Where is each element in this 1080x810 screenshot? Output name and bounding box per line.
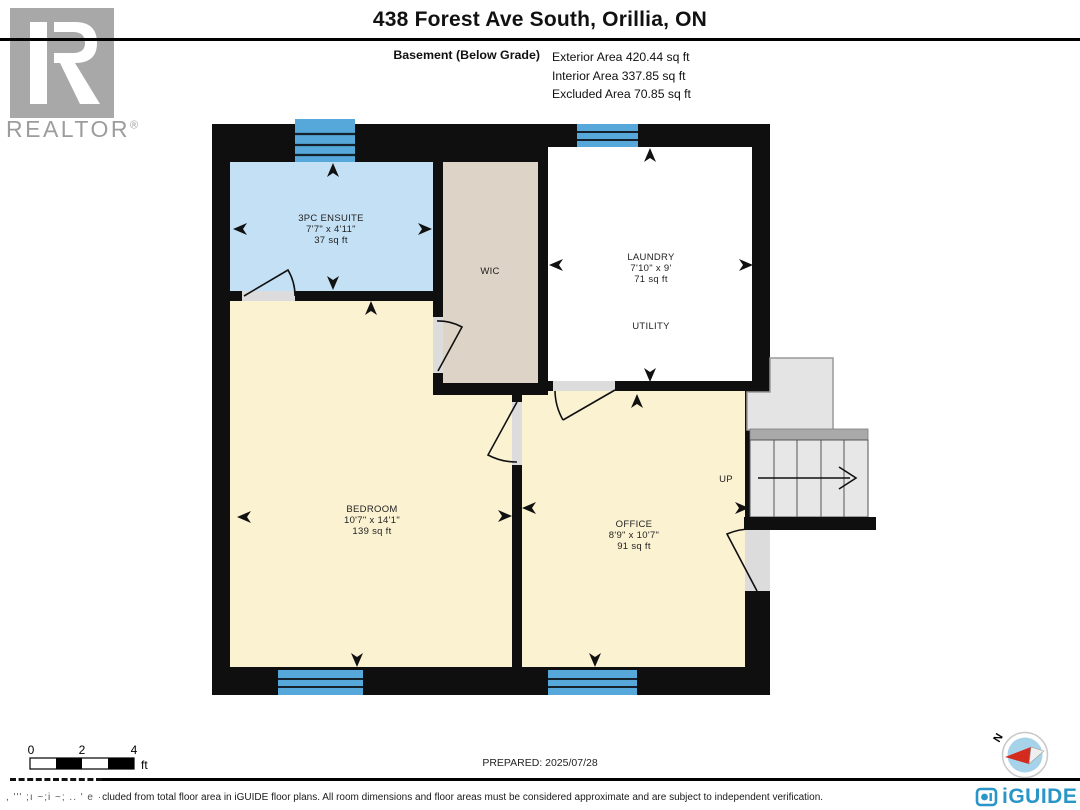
stair-bottom-wall <box>744 517 876 530</box>
registered-mark: ® <box>130 119 141 131</box>
label-bedroom-area: 139 sq ft <box>352 526 391 537</box>
bedroom-window <box>278 670 363 695</box>
prepared-date: PREPARED: 2025/07/28 <box>0 757 1080 769</box>
label-utility-name: UTILITY <box>632 321 670 332</box>
realtor-logo <box>8 6 120 125</box>
label-office-name: OFFICE <box>616 519 653 530</box>
floor-plan: 3PC ENSUITE 7'7" x 4'11" 37 sq ft WIC LA… <box>0 0 1080 810</box>
label-laundry-area: 71 sq ft <box>634 274 668 285</box>
header-divider <box>0 38 1080 41</box>
label-bedroom-dims: 10'7" x 14'1" <box>344 515 400 526</box>
label-wic-name: WIC <box>480 266 499 277</box>
compass: N <box>991 731 1047 777</box>
ensuite-window <box>295 119 355 162</box>
footer-divider <box>102 778 1080 781</box>
label-office-dims: 8'9" x 10'7" <box>609 530 659 541</box>
iguide-camera-icon <box>975 786 999 808</box>
label-bedroom-name: BEDROOM <box>346 504 397 515</box>
scale-tick-2: 2 <box>79 743 86 757</box>
label-stairs-up: UP <box>719 474 733 485</box>
iguide-wordmark: iGUIDE <box>1002 785 1077 809</box>
realtor-r-icon <box>8 6 120 120</box>
iguide-logo: iGUIDE <box>975 785 1077 809</box>
realtor-label: REALTOR <box>6 116 130 142</box>
footer-divider-dashed <box>10 778 102 781</box>
disclaimer-text: cluded from total floor area in iGUIDE f… <box>102 792 823 803</box>
office-window <box>548 670 637 695</box>
label-ensuite-name: 3PC ENSUITE <box>298 213 364 224</box>
label-ensuite-dims: 7'7" x 4'11" <box>306 224 356 235</box>
realtor-wordmark: REALTOR® <box>6 116 141 143</box>
disclaimer: , ''' ;ı ~;i ~; .. ' e ·cluded from tota… <box>6 792 823 803</box>
scale-tick-4: 4 <box>131 743 138 757</box>
label-ensuite-area: 37 sq ft <box>314 235 348 246</box>
scale-tick-0: 0 <box>28 743 35 757</box>
disclaimer-garbled-text: , ''' ;ı ~;i ~; .. ' e · <box>6 792 102 803</box>
label-office-area: 91 sq ft <box>617 541 651 552</box>
compass-north-label: N <box>991 731 1005 744</box>
laundry-window <box>577 124 638 147</box>
label-laundry-dims: 7'10" x 9' <box>630 263 671 274</box>
stair-band <box>750 429 868 440</box>
label-laundry-name: LAUNDRY <box>627 252 675 263</box>
